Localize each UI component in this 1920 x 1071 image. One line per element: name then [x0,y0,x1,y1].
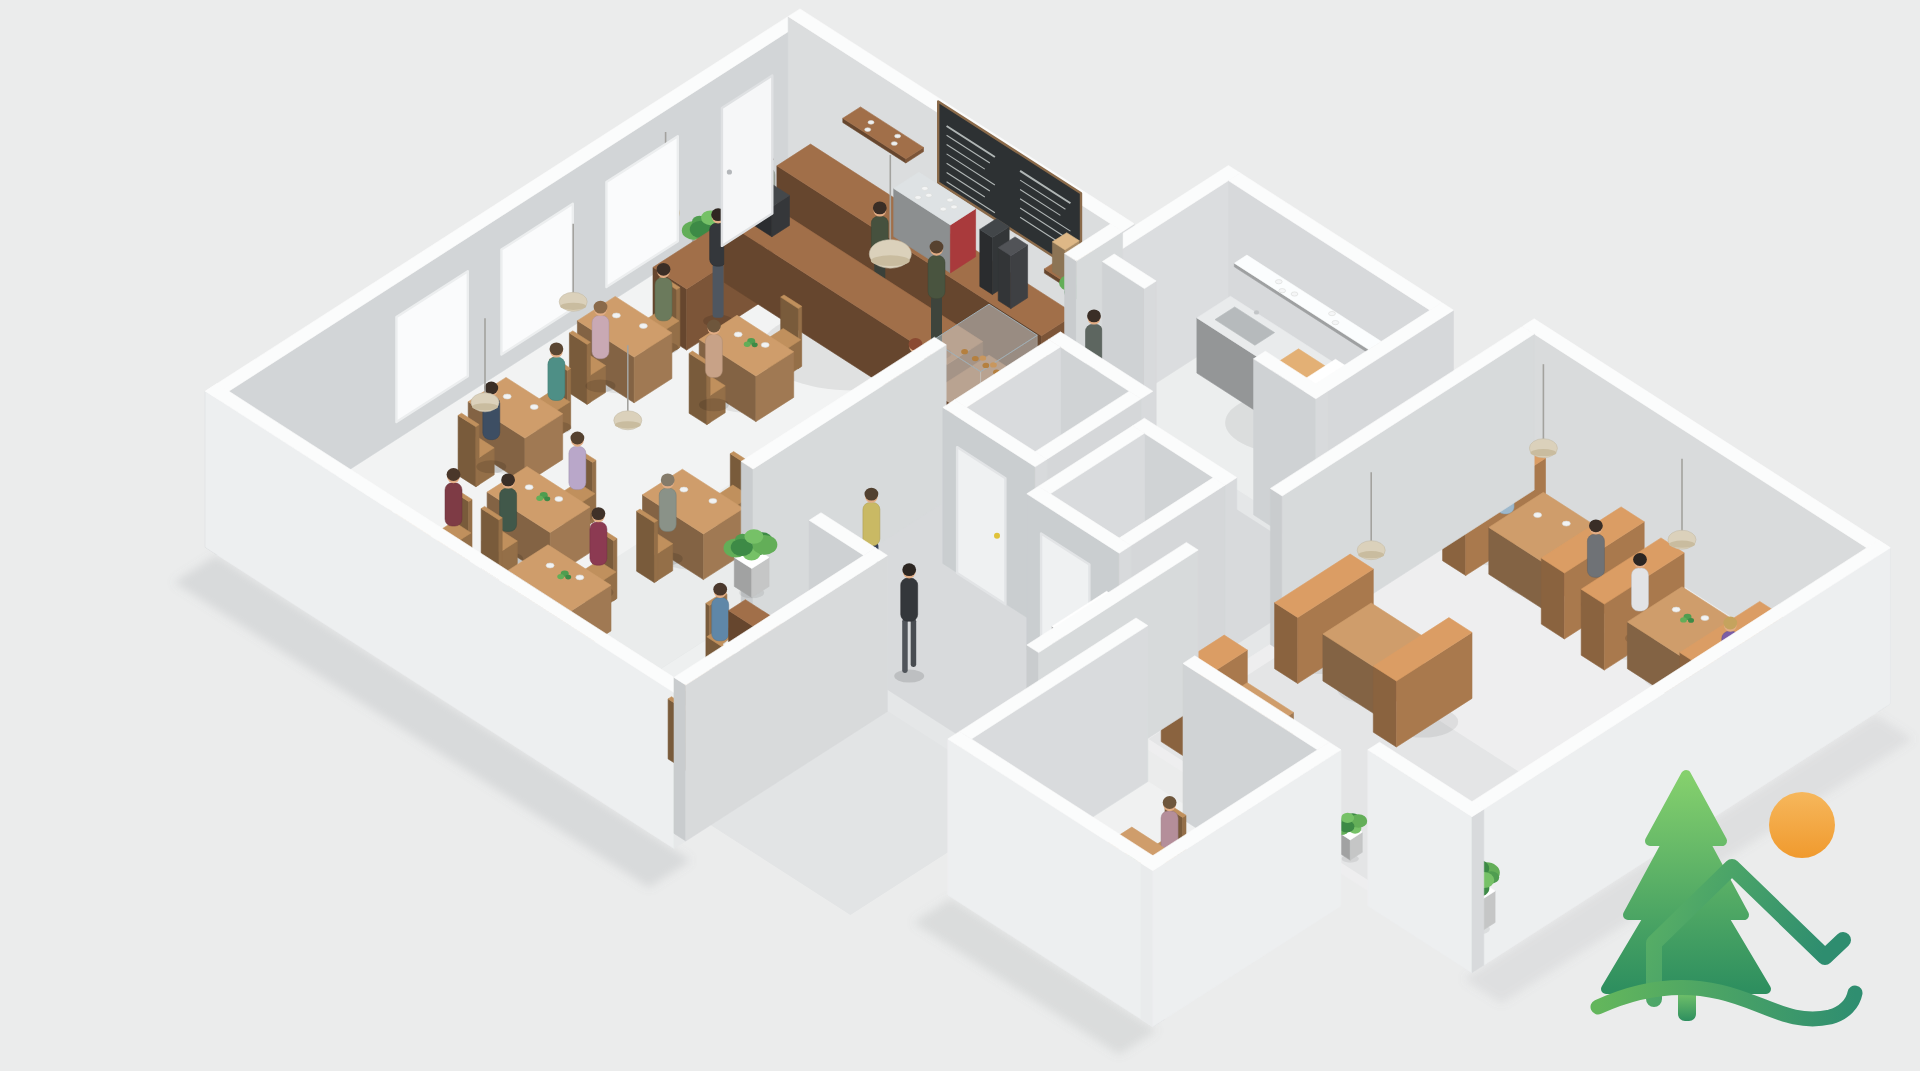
nature-logo [1582,749,1882,1049]
nature-logo-graphic [1582,749,1882,1049]
sun-icon [1769,792,1835,858]
coffee-grinder-2 [998,237,1027,309]
ground-wave-icon [1598,987,1855,1019]
cafe-floorplan-render [0,0,1920,1071]
